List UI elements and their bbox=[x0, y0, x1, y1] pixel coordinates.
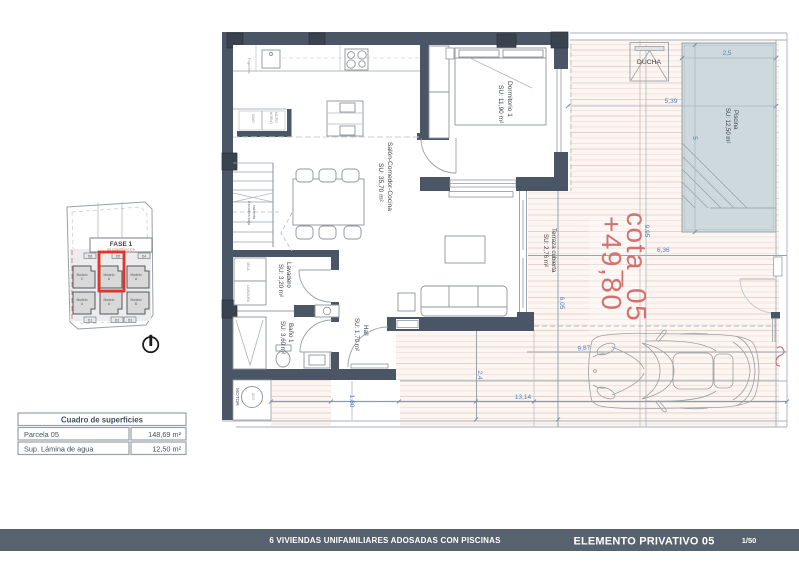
svg-text:D2: D2 bbox=[115, 318, 120, 322]
svg-text:2,4: 2,4 bbox=[476, 370, 483, 379]
svg-text:Escalera bajo: Escalera bajo bbox=[247, 201, 252, 226]
svg-text:1/50: 1/50 bbox=[742, 536, 757, 545]
svg-text:Salón-Comedor-Cocina: Salón-Comedor-Cocina bbox=[386, 142, 393, 211]
svg-text:D4: D4 bbox=[142, 254, 147, 258]
svg-text:9,95: 9,95 bbox=[643, 225, 650, 238]
svg-text:cubierta: cubierta bbox=[252, 205, 257, 220]
svg-text:9,87: 9,87 bbox=[577, 345, 590, 353]
svg-text:5: 5 bbox=[691, 136, 698, 140]
svg-text:Parcela 05: Parcela 05 bbox=[24, 430, 59, 439]
svg-text:SU: 12,50 m²: SU: 12,50 m² bbox=[724, 108, 730, 143]
svg-text:HORNO: HORNO bbox=[269, 112, 273, 124]
svg-text:6,36: 6,36 bbox=[657, 247, 670, 254]
svg-text:13,14: 13,14 bbox=[515, 394, 532, 401]
svg-text:SECA.: SECA. bbox=[246, 262, 250, 272]
svg-text:Baño 1: Baño 1 bbox=[287, 323, 294, 343]
svg-text:SU: 35,70 m²: SU: 35,70 m² bbox=[377, 163, 384, 203]
svg-text:6,05: 6,05 bbox=[558, 297, 565, 310]
svg-text:12,50 m²: 12,50 m² bbox=[152, 445, 181, 454]
svg-text:Terraza cubierta: Terraza cubierta bbox=[550, 228, 557, 273]
svg-text:SU: 11,90 m²: SU: 11,90 m² bbox=[497, 85, 504, 124]
svg-text:Cuadro de superficies: Cuadro de superficies bbox=[61, 416, 144, 425]
svg-text:6 VIVIENDAS UNIFAMILIARES ADOS: 6 VIVIENDAS UNIFAMILIARES ADOSADAS CON P… bbox=[269, 536, 501, 545]
svg-text:60x60: 60x60 bbox=[251, 114, 255, 123]
svg-text:Frigorífico: Frigorífico bbox=[247, 58, 251, 74]
svg-text:Lavadero: Lavadero bbox=[285, 262, 292, 288]
svg-text:D5: D5 bbox=[116, 254, 121, 258]
svg-text:1,80: 1,80 bbox=[348, 395, 355, 408]
svg-text:D6: D6 bbox=[88, 254, 93, 258]
svg-text:D3: D3 bbox=[128, 318, 133, 322]
svg-text:+49,80: +49,80 bbox=[596, 216, 627, 311]
svg-text:ACS: ACS bbox=[251, 393, 255, 401]
svg-text:Sup. Lámina de agua: Sup. Lámina de agua bbox=[24, 445, 94, 454]
svg-text:DUCHA: DUCHA bbox=[637, 59, 662, 66]
svg-text:Piscina: Piscina bbox=[732, 110, 738, 130]
svg-text:SU: 3,60 m²: SU: 3,60 m² bbox=[279, 321, 286, 354]
svg-text:5,39: 5,39 bbox=[665, 98, 678, 105]
svg-text:ELEMENTO PRIVATIVO 05: ELEMENTO PRIVATIVO 05 bbox=[573, 536, 714, 548]
svg-text:Dormitorio 1: Dormitorio 1 bbox=[506, 81, 513, 117]
svg-text:2,5: 2,5 bbox=[722, 50, 731, 57]
svg-text:SU: 3,20 m²: SU: 3,20 m² bbox=[277, 264, 284, 297]
svg-text:LAVADORA: LAVADORA bbox=[246, 285, 250, 303]
svg-text:MICRO: MICRO bbox=[274, 112, 278, 123]
svg-text:148,69 m²: 148,69 m² bbox=[148, 430, 181, 439]
svg-text:D1: D1 bbox=[88, 318, 93, 322]
svg-text:MOTOR: MOTOR bbox=[234, 388, 240, 406]
svg-text:SU: 2,76 m²: SU: 2,76 m² bbox=[542, 234, 549, 267]
